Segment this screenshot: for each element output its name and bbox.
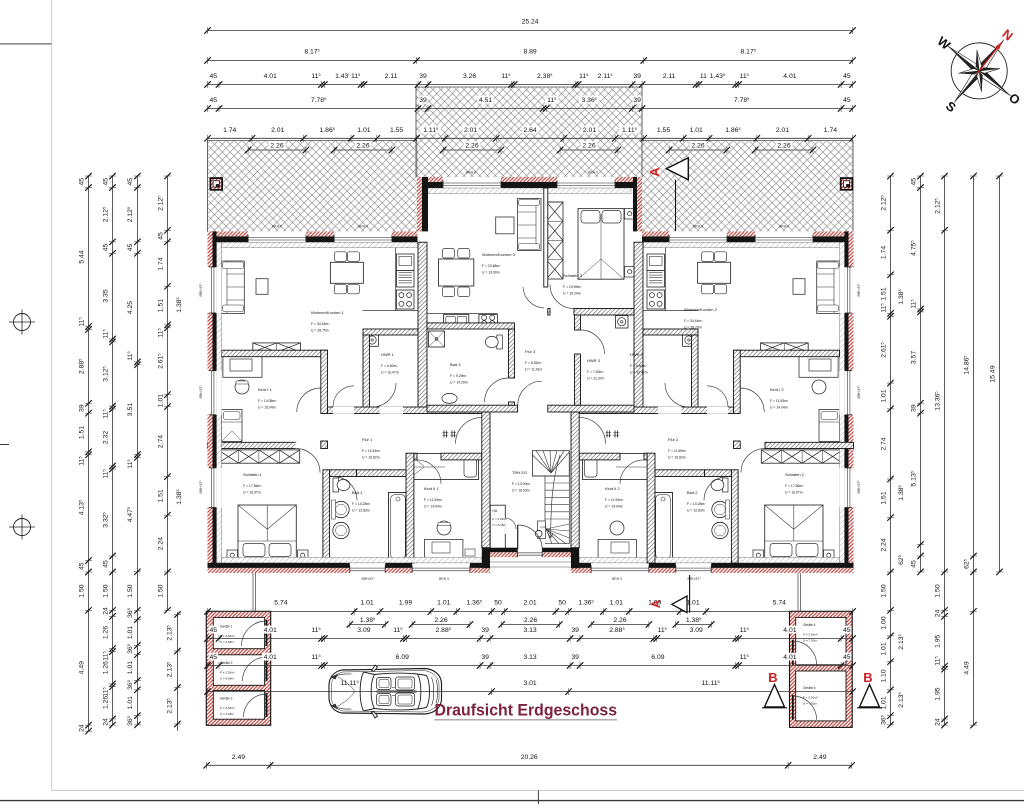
svg-text:F = 8.52m²: F = 8.52m² xyxy=(525,361,542,365)
svg-text:24: 24 xyxy=(934,609,941,617)
svg-text:2.26: 2.26 xyxy=(582,142,595,149)
svg-text:BRH 0: BRH 0 xyxy=(779,225,789,229)
svg-text:4.475: 4.475 xyxy=(127,507,134,522)
svg-text:1.51: 1.51 xyxy=(157,299,164,312)
svg-text:5.74: 5.74 xyxy=(274,600,287,607)
svg-text:U = 5.16m: U = 5.16m xyxy=(493,523,507,527)
svg-text:Geräte 3: Geräte 3 xyxy=(220,697,233,701)
svg-text:1.55: 1.55 xyxy=(657,127,670,134)
svg-text:2.125: 2.125 xyxy=(102,207,109,222)
svg-text:1.74: 1.74 xyxy=(824,127,837,134)
svg-text:2.115: 2.115 xyxy=(598,73,613,80)
svg-text:F = 9.29m²: F = 9.29m² xyxy=(450,374,467,378)
svg-text:1.74: 1.74 xyxy=(157,257,164,270)
svg-text:2.26: 2.26 xyxy=(524,617,537,624)
svg-text:TRH EG: TRH EG xyxy=(512,470,527,475)
svg-text:Kind I 2: Kind I 2 xyxy=(770,387,784,392)
svg-text:U = 15.04m: U = 15.04m xyxy=(258,406,276,410)
svg-text:2.385: 2.385 xyxy=(537,73,552,80)
svg-text:1.385: 1.385 xyxy=(360,617,375,624)
svg-text:45: 45 xyxy=(910,178,917,186)
svg-text:2.26: 2.26 xyxy=(691,142,704,149)
svg-text:2.74: 2.74 xyxy=(880,437,887,450)
svg-text:6.09: 6.09 xyxy=(651,654,664,661)
svg-text:B: B xyxy=(863,670,872,685)
svg-text:45: 45 xyxy=(127,178,134,186)
svg-text:5.135: 5.135 xyxy=(910,471,917,486)
svg-text:11.115: 11.115 xyxy=(702,680,720,687)
svg-text:1.00: 1.00 xyxy=(880,616,887,629)
svg-text:1.385: 1.385 xyxy=(176,489,183,504)
svg-text:2.49: 2.49 xyxy=(813,754,826,761)
svg-text:4.01: 4.01 xyxy=(783,627,796,634)
svg-text:F = 2.53m²: F = 2.53m² xyxy=(220,706,235,710)
svg-text:50: 50 xyxy=(558,600,566,607)
svg-text:3.325: 3.325 xyxy=(102,512,109,527)
svg-text:3.13: 3.13 xyxy=(523,654,536,661)
svg-text:2.24: 2.24 xyxy=(157,537,164,550)
svg-text:4.51: 4.51 xyxy=(479,97,492,104)
svg-text:U = 16.24m: U = 16.24m xyxy=(563,292,581,296)
svg-text:39: 39 xyxy=(910,404,917,412)
svg-text:3.57: 3.57 xyxy=(910,351,917,364)
svg-text:BRH 0: BRH 0 xyxy=(358,225,368,229)
svg-text:F = 15.99m²: F = 15.99m² xyxy=(563,285,582,289)
svg-text:A: A xyxy=(647,167,662,177)
svg-text:2.01: 2.01 xyxy=(464,127,477,134)
svg-text:39: 39 xyxy=(571,627,579,634)
svg-text:2.11: 2.11 xyxy=(385,73,398,80)
svg-text:3.01: 3.01 xyxy=(523,680,536,687)
svg-text:3.13: 3.13 xyxy=(523,627,536,634)
svg-text:U = 16.53m: U = 16.53m xyxy=(512,489,530,493)
svg-text:1.385: 1.385 xyxy=(176,297,183,312)
svg-text:2.01: 2.01 xyxy=(523,600,536,607)
svg-text:HA: HA xyxy=(493,509,498,513)
svg-text:F = 3.91m²: F = 3.91m² xyxy=(803,696,818,700)
svg-text:1.435: 1.435 xyxy=(335,73,350,80)
svg-text:Bad 2: Bad 2 xyxy=(687,490,698,495)
svg-text:2.615: 2.615 xyxy=(157,354,164,369)
svg-text:14.865: 14.865 xyxy=(963,355,970,374)
svg-text:24: 24 xyxy=(78,724,85,732)
svg-text:24: 24 xyxy=(102,718,109,726)
svg-text:U = 10.47m: U = 10.47m xyxy=(381,371,399,375)
svg-text:45: 45 xyxy=(102,560,109,568)
svg-text:45: 45 xyxy=(102,178,109,186)
svg-text:1.435: 1.435 xyxy=(710,73,725,80)
svg-text:Flur 2: Flur 2 xyxy=(668,437,679,442)
svg-text:U = 10.47m: U = 10.47m xyxy=(630,371,648,375)
svg-text:2.615: 2.615 xyxy=(880,342,887,357)
svg-text:F = 10.28m²: F = 10.28m² xyxy=(352,502,371,506)
svg-text:1.95: 1.95 xyxy=(934,687,941,700)
svg-text:BRH 875: BRH 875 xyxy=(857,385,861,399)
svg-text:Schlafen 1: Schlafen 1 xyxy=(243,472,263,477)
svg-text:BRH 0: BRH 0 xyxy=(588,171,598,175)
svg-text:2.49: 2.49 xyxy=(232,754,245,761)
svg-text:U = 6.54m: U = 6.54m xyxy=(220,712,234,716)
svg-text:2.26: 2.26 xyxy=(434,617,447,624)
svg-text:Schlafen 2: Schlafen 2 xyxy=(785,472,805,477)
svg-text:45: 45 xyxy=(210,73,218,80)
svg-text:U = 12.83m: U = 12.83m xyxy=(687,509,705,513)
svg-text:39: 39 xyxy=(481,627,489,634)
svg-text:3.35: 3.35 xyxy=(102,289,109,302)
svg-text:2.74: 2.74 xyxy=(157,435,164,448)
svg-text:F = 11.93m²: F = 11.93m² xyxy=(770,399,789,403)
svg-text:45: 45 xyxy=(910,560,917,568)
svg-text:F = 6.60m²: F = 6.60m² xyxy=(381,364,398,368)
svg-text:3.125: 3.125 xyxy=(102,366,109,381)
svg-text:2.24: 2.24 xyxy=(880,538,887,551)
svg-text:20.26: 20.26 xyxy=(521,754,538,761)
svg-text:39: 39 xyxy=(419,73,427,80)
svg-text:45: 45 xyxy=(210,97,218,104)
svg-text:4.01: 4.01 xyxy=(264,73,277,80)
svg-text:2.125: 2.125 xyxy=(127,207,134,222)
svg-text:Flur 1: Flur 1 xyxy=(362,437,373,442)
svg-text:24: 24 xyxy=(934,718,941,726)
svg-text:U = 14.04m: U = 14.04m xyxy=(605,505,623,509)
svg-text:1.10: 1.10 xyxy=(880,669,887,682)
svg-text:39: 39 xyxy=(481,654,489,661)
svg-text:BRH 0: BRH 0 xyxy=(272,225,282,229)
svg-text:1.385: 1.385 xyxy=(898,289,905,304)
svg-text:15.49: 15.49 xyxy=(989,365,996,382)
svg-text:BRH 875: BRH 875 xyxy=(199,480,203,494)
svg-text:2.135: 2.135 xyxy=(167,625,174,640)
svg-text:BRH 0: BRH 0 xyxy=(612,577,622,581)
svg-text:45: 45 xyxy=(210,654,218,661)
svg-text:HWR 3: HWR 3 xyxy=(587,358,601,363)
svg-text:1.385: 1.385 xyxy=(686,617,701,624)
svg-text:BRH 0: BRH 0 xyxy=(466,171,476,175)
svg-text:1.01: 1.01 xyxy=(357,127,370,134)
svg-text:1.74: 1.74 xyxy=(880,246,887,259)
svg-text:6.09: 6.09 xyxy=(396,654,409,661)
svg-text:2.32: 2.32 xyxy=(102,431,109,444)
svg-text:BRH 875: BRH 875 xyxy=(199,385,203,399)
svg-text:1.01: 1.01 xyxy=(686,600,699,607)
svg-text:3.26: 3.26 xyxy=(463,73,476,80)
svg-text:F = 14.08m²: F = 14.08m² xyxy=(258,399,277,403)
svg-text:F = 11.93m²: F = 11.93m² xyxy=(424,498,443,502)
svg-text:Draufsicht Erdgeschoss: Draufsicht Erdgeschoss xyxy=(435,702,618,720)
svg-text:3.365: 3.365 xyxy=(582,97,597,104)
svg-text:Kind I 1: Kind I 1 xyxy=(258,387,272,392)
svg-text:2.01: 2.01 xyxy=(583,127,596,134)
svg-text:2.135: 2.135 xyxy=(167,662,174,677)
svg-text:F = 6.60m²: F = 6.60m² xyxy=(630,364,647,368)
svg-text:4.01: 4.01 xyxy=(264,654,277,661)
svg-text:45: 45 xyxy=(843,97,851,104)
svg-text:2.135: 2.135 xyxy=(898,692,905,707)
svg-text:F = 23.68m²: F = 23.68m² xyxy=(482,264,501,268)
svg-text:Bad 1: Bad 1 xyxy=(352,490,363,495)
svg-text:2.64: 2.64 xyxy=(523,127,536,134)
svg-text:4.01: 4.01 xyxy=(264,627,277,634)
svg-text:8.175: 8.175 xyxy=(304,49,319,56)
svg-text:4.01: 4.01 xyxy=(783,654,796,661)
svg-text:BRH 875: BRH 875 xyxy=(857,480,861,494)
svg-text:U = 19.90m: U = 19.90m xyxy=(482,271,500,275)
svg-text:2.26: 2.26 xyxy=(465,142,478,149)
svg-text:2.01: 2.01 xyxy=(776,127,789,134)
svg-text:F = 34.44m²: F = 34.44m² xyxy=(311,322,330,326)
svg-text:1.01: 1.01 xyxy=(127,626,134,639)
svg-text:1.115: 1.115 xyxy=(622,127,637,134)
svg-text:U = 7.92m: U = 7.92m xyxy=(803,639,817,643)
svg-text:1.51: 1.51 xyxy=(880,287,887,300)
svg-text:2.26: 2.26 xyxy=(270,142,283,149)
svg-text:2.125: 2.125 xyxy=(880,195,887,210)
svg-text:F = 11.69m²: F = 11.69m² xyxy=(668,449,687,453)
svg-text:1.51: 1.51 xyxy=(880,491,887,504)
svg-text:39: 39 xyxy=(571,654,579,661)
svg-text:45: 45 xyxy=(843,73,851,80)
svg-text:1.01: 1.01 xyxy=(880,389,887,402)
svg-text:1.51: 1.51 xyxy=(78,426,85,439)
svg-text:45: 45 xyxy=(843,627,851,634)
svg-text:1.385: 1.385 xyxy=(898,485,905,500)
svg-text:1.95: 1.95 xyxy=(934,634,941,647)
svg-text:4.25: 4.25 xyxy=(127,301,134,314)
svg-text:Wohnen/Kochen 2: Wohnen/Kochen 2 xyxy=(684,307,718,312)
svg-text:U = 11.91m: U = 11.91m xyxy=(525,368,543,372)
svg-text:Wohnen/Kochen 1: Wohnen/Kochen 1 xyxy=(311,310,345,315)
svg-text:F = 17.56m²: F = 17.56m² xyxy=(785,484,804,488)
svg-text:Schlafen 3: Schlafen 3 xyxy=(563,273,583,278)
svg-text:U = 16.82m: U = 16.82m xyxy=(668,456,686,460)
svg-text:39: 39 xyxy=(633,73,641,80)
svg-text:2.26: 2.26 xyxy=(777,142,790,149)
svg-text:U = 28.70m: U = 28.70m xyxy=(684,326,702,330)
svg-text:24: 24 xyxy=(102,607,109,615)
svg-text:11.115: 11.115 xyxy=(340,680,358,687)
svg-text:1.74: 1.74 xyxy=(223,127,236,134)
svg-text:F = 17.56m²: F = 17.56m² xyxy=(243,484,262,488)
svg-text:1.01: 1.01 xyxy=(360,600,373,607)
svg-text:F = 10.28m²: F = 10.28m² xyxy=(687,502,706,506)
svg-text:39: 39 xyxy=(419,97,427,104)
svg-text:F = 1.63m²: F = 1.63m² xyxy=(493,517,507,521)
svg-text:5.44: 5.44 xyxy=(78,250,85,263)
svg-text:45: 45 xyxy=(102,244,109,252)
svg-text:U = 16.82m: U = 16.82m xyxy=(362,456,380,460)
svg-text:3.09: 3.09 xyxy=(357,627,370,634)
svg-text:2.125: 2.125 xyxy=(157,196,164,211)
svg-text:3.51: 3.51 xyxy=(127,403,134,416)
svg-text:1.01: 1.01 xyxy=(437,600,450,607)
svg-text:A: A xyxy=(651,600,663,608)
svg-text:1.50: 1.50 xyxy=(880,584,887,597)
svg-text:U = 16.97m: U = 16.97m xyxy=(243,491,261,495)
svg-text:F = 11.63m²: F = 11.63m² xyxy=(362,449,381,453)
svg-text:2.135: 2.135 xyxy=(898,634,905,649)
svg-text:Bad 3: Bad 3 xyxy=(450,362,461,367)
svg-text:4.135: 4.135 xyxy=(78,500,85,515)
svg-text:1.01: 1.01 xyxy=(880,642,887,655)
svg-text:BRH 875: BRH 875 xyxy=(199,283,203,297)
svg-text:U = 12.83m: U = 12.83m xyxy=(352,509,370,513)
svg-text:U = 11.37m: U = 11.37m xyxy=(587,377,605,381)
svg-text:1.01: 1.01 xyxy=(127,696,134,709)
svg-text:4.49: 4.49 xyxy=(78,661,85,674)
svg-text:+0.00: +0.00 xyxy=(540,526,547,529)
svg-text:2.885: 2.885 xyxy=(609,627,624,634)
svg-text:2.11: 2.11 xyxy=(663,73,676,80)
svg-text:13.365: 13.365 xyxy=(934,391,941,410)
svg-text:BRH 0: BRH 0 xyxy=(693,225,703,229)
svg-text:F = 13.00m²: F = 13.00m² xyxy=(512,482,531,486)
svg-text:1.50: 1.50 xyxy=(102,584,109,597)
svg-text:1.51: 1.51 xyxy=(157,489,164,502)
svg-text:1.99: 1.99 xyxy=(399,600,412,607)
svg-text:1.26: 1.26 xyxy=(102,626,109,639)
svg-text:HWR 2: HWR 2 xyxy=(630,352,644,357)
svg-text:25.24: 25.24 xyxy=(522,19,539,26)
svg-text:1.365: 1.365 xyxy=(467,600,482,607)
svg-text:3.09: 3.09 xyxy=(690,627,703,634)
svg-text:45: 45 xyxy=(210,627,218,634)
svg-text:1.50: 1.50 xyxy=(157,584,164,597)
svg-text:B: B xyxy=(768,670,777,685)
svg-text:1.50: 1.50 xyxy=(934,584,941,597)
svg-text:4.01: 4.01 xyxy=(783,73,796,80)
svg-text:BRH 875: BRH 875 xyxy=(361,577,375,581)
svg-text:F = 34.44m²: F = 34.44m² xyxy=(684,319,703,323)
svg-text:Geräte 5: Geräte 5 xyxy=(803,686,816,690)
svg-text:1.50: 1.50 xyxy=(78,584,85,597)
svg-text:45: 45 xyxy=(78,562,85,570)
svg-text:1.115: 1.115 xyxy=(423,127,438,134)
svg-text:Geräte 4: Geräte 4 xyxy=(803,623,816,627)
svg-text:2.125: 2.125 xyxy=(934,198,941,213)
svg-text:U = 28.75m: U = 28.75m xyxy=(311,329,329,333)
svg-text:2.885: 2.885 xyxy=(436,627,451,634)
svg-text:45: 45 xyxy=(127,244,134,252)
svg-text:2.26: 2.26 xyxy=(613,617,626,624)
svg-text:F = 2.53m²: F = 2.53m² xyxy=(220,671,235,675)
svg-text:U = 14.04m: U = 14.04m xyxy=(424,505,442,509)
svg-text:HWR 1: HWR 1 xyxy=(381,352,395,357)
svg-text:39: 39 xyxy=(633,97,641,104)
svg-text:1.865: 1.865 xyxy=(320,127,335,134)
svg-text:1.50: 1.50 xyxy=(127,584,134,597)
svg-text:Kind II 2: Kind II 2 xyxy=(605,486,620,491)
svg-text:2.885: 2.885 xyxy=(78,359,85,374)
svg-text:1.26: 1.26 xyxy=(102,696,109,709)
svg-text:8.175: 8.175 xyxy=(741,49,756,56)
svg-text:Kind II 1: Kind II 1 xyxy=(424,486,439,491)
svg-text:1.365: 1.365 xyxy=(578,600,593,607)
svg-text:8.89: 8.89 xyxy=(523,49,536,56)
svg-text:U = 7.91m: U = 7.91m xyxy=(803,702,817,706)
svg-text:F = 7.50m²: F = 7.50m² xyxy=(587,370,604,374)
svg-text:7.785: 7.785 xyxy=(311,97,326,104)
svg-text:U = 6.54m: U = 6.54m xyxy=(220,640,234,644)
svg-text:1.865: 1.865 xyxy=(725,127,740,134)
svg-text:2.26: 2.26 xyxy=(356,142,369,149)
svg-text:4.49: 4.49 xyxy=(963,661,970,674)
svg-text:1.26: 1.26 xyxy=(102,661,109,674)
svg-text:1.01: 1.01 xyxy=(610,600,623,607)
svg-text:BRH 875: BRH 875 xyxy=(857,283,861,297)
svg-text:50: 50 xyxy=(494,600,502,607)
svg-text:5.74: 5.74 xyxy=(773,600,786,607)
svg-text:1.01: 1.01 xyxy=(127,661,134,674)
svg-text:39: 39 xyxy=(78,404,85,412)
svg-text:45: 45 xyxy=(157,232,164,240)
svg-text:45: 45 xyxy=(78,178,85,186)
svg-text:Wohnen/Kochen 3: Wohnen/Kochen 3 xyxy=(482,252,516,257)
svg-text:7.785: 7.785 xyxy=(734,97,749,104)
svg-text:45: 45 xyxy=(843,654,851,661)
svg-text:Flur 3: Flur 3 xyxy=(525,349,536,354)
svg-text:BRH 0: BRH 0 xyxy=(439,577,449,581)
svg-text:U = 14.04m: U = 14.04m xyxy=(770,406,788,410)
svg-text:1.01: 1.01 xyxy=(690,127,703,134)
svg-text:Geräte 1: Geräte 1 xyxy=(220,625,233,629)
svg-text:U = 16.97m: U = 16.97m xyxy=(785,491,803,495)
svg-text:F = 3.91m²: F = 3.91m² xyxy=(803,633,818,637)
svg-text:F = 11.93m²: F = 11.93m² xyxy=(605,498,624,502)
svg-text:2.135: 2.135 xyxy=(167,698,174,713)
svg-text:2.01: 2.01 xyxy=(271,127,284,134)
svg-text:1.55: 1.55 xyxy=(390,127,403,134)
svg-text:4.755: 4.755 xyxy=(910,241,917,256)
svg-text:U = 6.54m: U = 6.54m xyxy=(220,677,234,681)
svg-text:U = 14.29m: U = 14.29m xyxy=(450,381,468,385)
svg-text:1.01: 1.01 xyxy=(157,394,164,407)
